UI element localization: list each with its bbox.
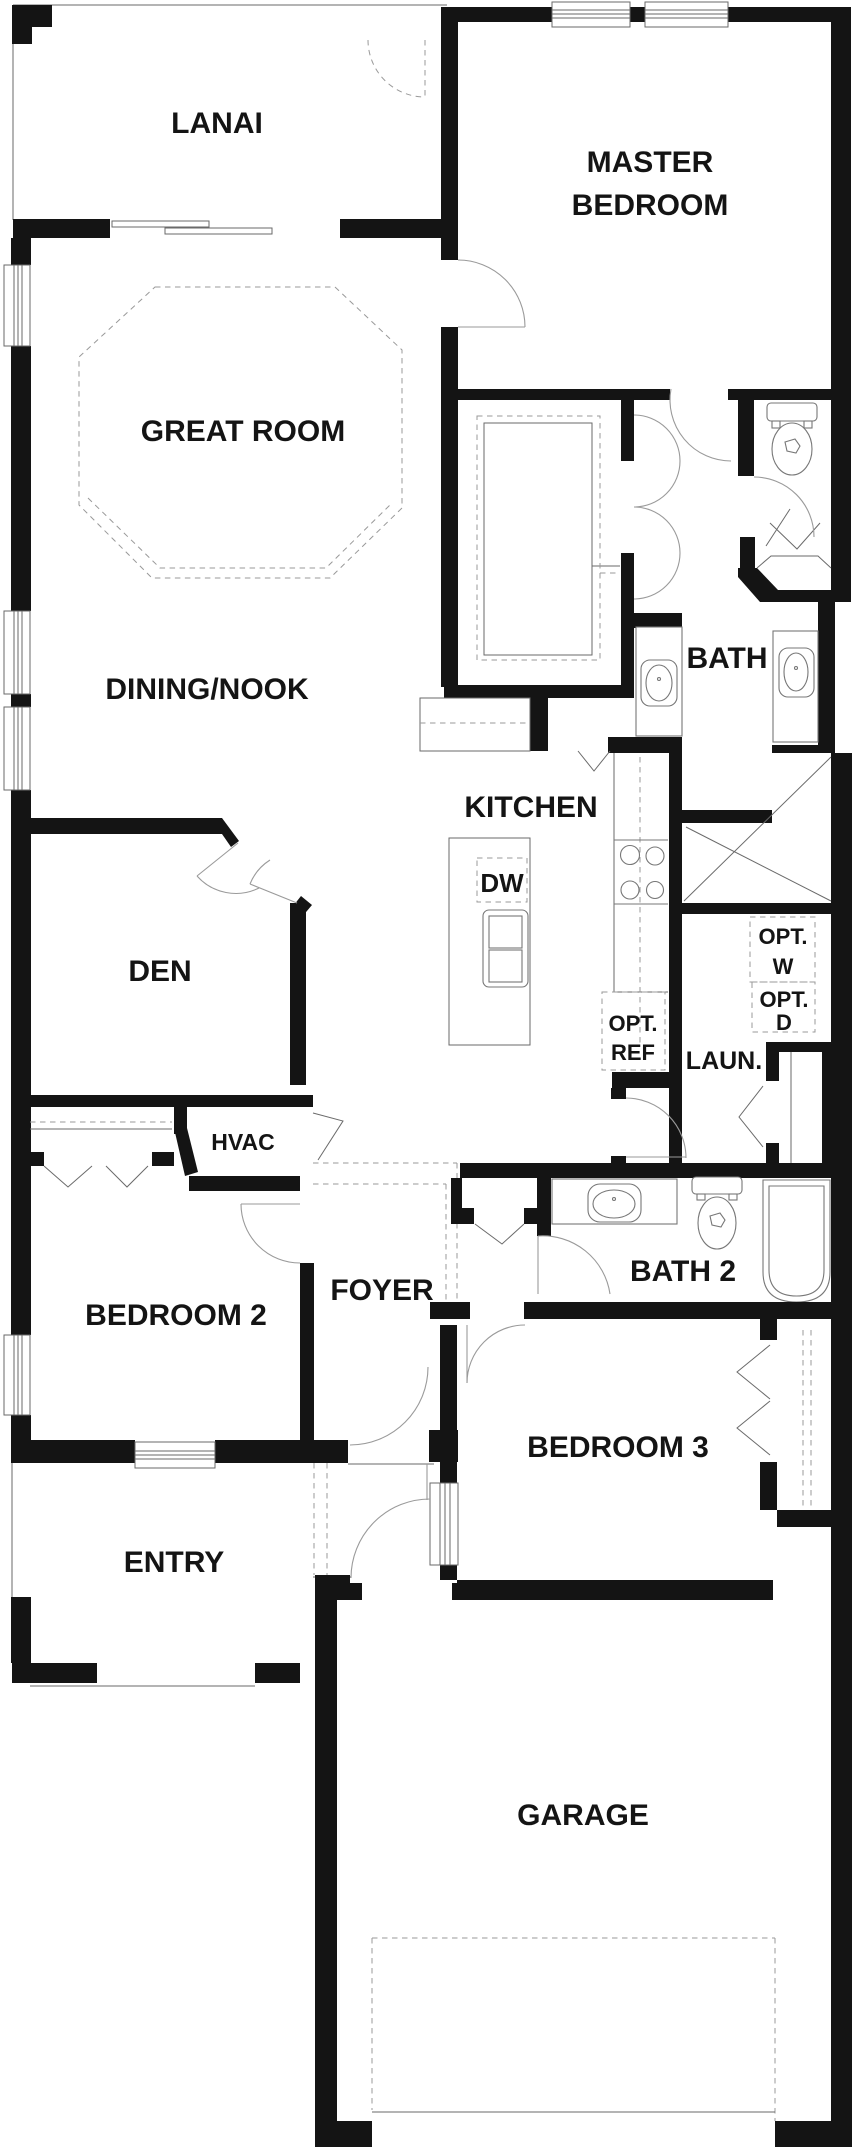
svg-text:LAUN.: LAUN.	[686, 1047, 762, 1075]
svg-text:OPT.: OPT.	[760, 987, 809, 1012]
svg-text:MASTER: MASTER	[587, 146, 714, 179]
svg-text:ENTRY: ENTRY	[124, 1546, 225, 1579]
svg-text:BEDROOM 2: BEDROOM 2	[85, 1299, 267, 1332]
svg-text:BATH 2: BATH 2	[630, 1255, 736, 1288]
svg-text:GARAGE: GARAGE	[517, 1799, 649, 1832]
svg-text:DEN: DEN	[128, 955, 191, 988]
svg-text:GREAT ROOM: GREAT ROOM	[141, 415, 345, 448]
svg-text:BEDROOM 3: BEDROOM 3	[527, 1431, 709, 1464]
svg-text:DW: DW	[480, 868, 524, 898]
svg-text:BEDROOM: BEDROOM	[572, 189, 729, 222]
svg-text:FOYER: FOYER	[330, 1274, 434, 1307]
svg-text:REF: REF	[611, 1040, 655, 1065]
svg-text:BATH: BATH	[686, 642, 767, 675]
svg-text:KITCHEN: KITCHEN	[464, 791, 597, 824]
svg-text:OPT.: OPT.	[759, 924, 808, 949]
svg-text:D: D	[776, 1010, 792, 1035]
svg-text:W: W	[773, 954, 794, 979]
svg-text:LANAI: LANAI	[171, 107, 263, 140]
svg-text:HVAC: HVAC	[211, 1129, 274, 1155]
svg-text:DINING/NOOK: DINING/NOOK	[105, 673, 309, 706]
svg-text:OPT.: OPT.	[609, 1011, 658, 1036]
